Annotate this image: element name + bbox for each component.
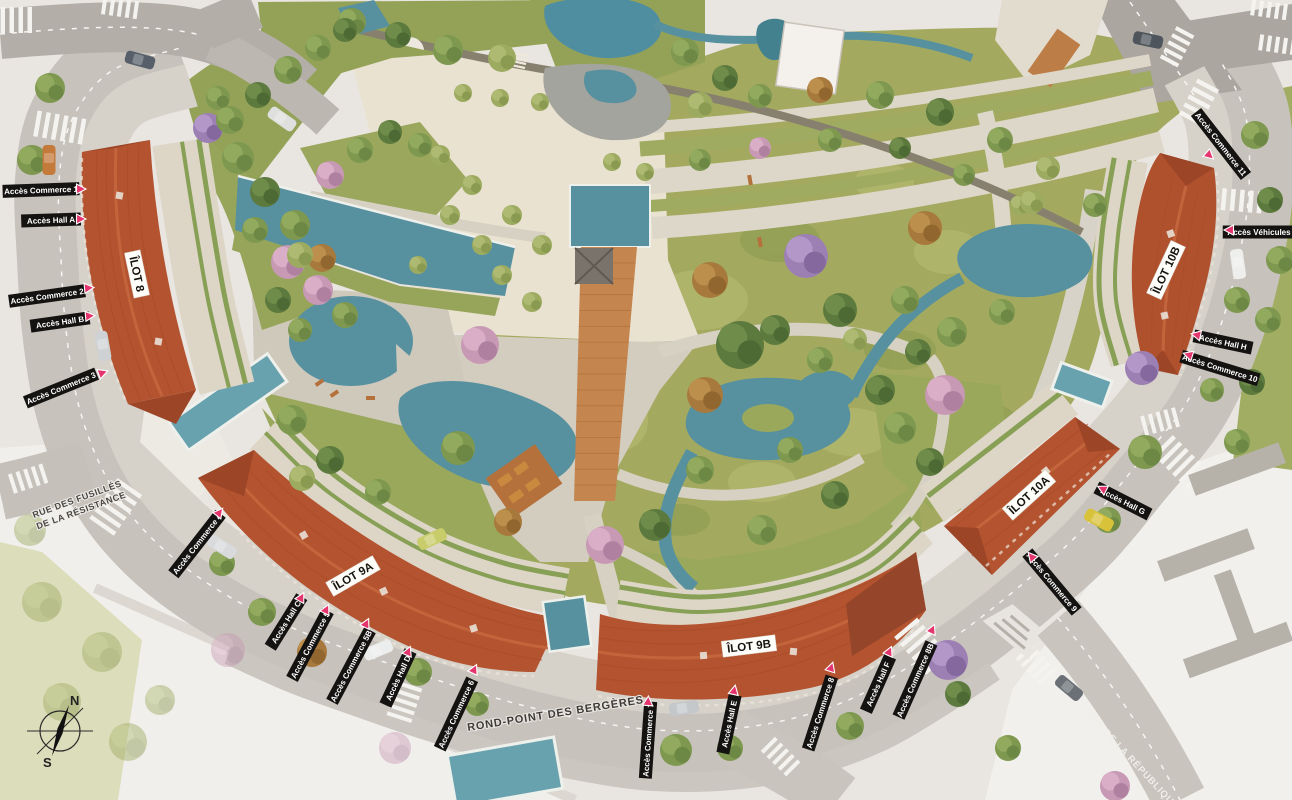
svg-text:N: N: [70, 693, 79, 708]
svg-text:S: S: [43, 755, 52, 770]
svg-text:Accès Véhicules: Accès Véhicules: [1227, 228, 1291, 237]
svg-text:Accès Hall A: Accès Hall A: [27, 215, 76, 226]
